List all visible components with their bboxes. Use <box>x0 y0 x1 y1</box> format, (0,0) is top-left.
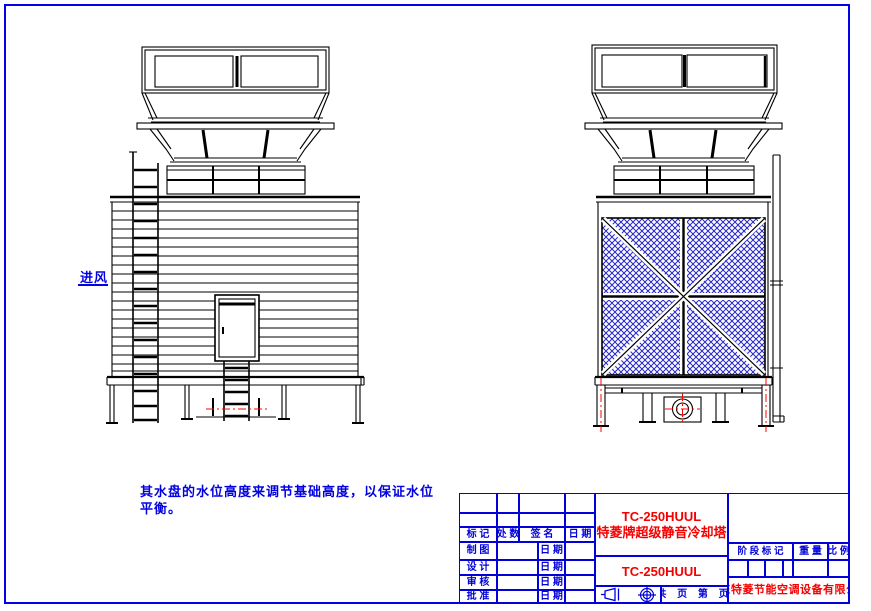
row-design-signature <box>497 560 538 575</box>
stage-mark-cell <box>765 560 783 577</box>
stage-mark-cell <box>783 560 793 577</box>
air-inlet-underline <box>78 284 108 286</box>
row-design-date-value <box>565 560 595 575</box>
revision-cell <box>459 513 497 527</box>
row-approve-date-value <box>565 590 595 603</box>
row-draft-date: 日 期 <box>538 542 565 560</box>
front-view-drawing <box>106 47 364 423</box>
company-name: 广东特菱节能空调设备有限公司 <box>728 577 849 603</box>
drawing-number: TC-250HUUL <box>595 556 728 586</box>
row-draft-date-value <box>565 542 595 560</box>
stage-mark-header: 阶 段 标 记 <box>728 543 793 560</box>
row-draft-signature <box>497 542 538 560</box>
row-design-label: 设 计 <box>459 560 497 575</box>
product-name: 特菱牌超级静音冷却塔 <box>596 526 726 539</box>
drawing-sheet: 进风 其水盘的水位高度来调节基础高度，以保证水位 平衡。 标 记 处 数 签 名… <box>0 0 871 611</box>
revision-cell <box>519 513 565 527</box>
revision-cell <box>565 513 595 527</box>
row-draft-label: 制 图 <box>459 542 497 560</box>
projection-symbols-cell <box>595 586 661 603</box>
row-approve-label: 批 准 <box>459 590 497 603</box>
first-angle-projection-icon <box>600 587 626 602</box>
revision-cell <box>565 493 595 513</box>
row-review-signature <box>497 575 538 590</box>
revision-cell <box>497 513 519 527</box>
weight-value-cell <box>793 560 828 577</box>
material-cell <box>728 493 849 543</box>
scale-header: 比 例 <box>828 543 849 560</box>
title-cell: TC-250HUUL 特菱牌超级静音冷却塔 <box>595 493 728 556</box>
weight-header: 重 量 <box>793 543 828 560</box>
header-signature: 签 名 <box>519 527 565 542</box>
title-block: 标 记 处 数 签 名 日 期 制 图 日 期 设 计 日 期 审 核 日 期 … <box>459 493 849 603</box>
note-line-2: 平衡。 <box>140 498 182 517</box>
row-review-date-value <box>565 575 595 590</box>
scale-value-cell <box>828 560 849 577</box>
note-line-1: 其水盘的水位高度来调节基础高度，以保证水位 <box>140 481 434 500</box>
pages-cell: 共 页 第 页 <box>661 586 728 603</box>
revision-cell <box>459 493 497 513</box>
inlet-mesh <box>602 218 765 375</box>
stage-mark-cell <box>748 560 765 577</box>
side-view-drawing <box>585 45 784 432</box>
header-mark: 标 记 <box>459 527 497 542</box>
revision-cell <box>519 493 565 513</box>
datum-target-icon <box>638 586 656 603</box>
row-review-label: 审 核 <box>459 575 497 590</box>
row-approve-signature <box>497 590 538 603</box>
stage-mark-cell <box>728 560 748 577</box>
row-review-date: 日 期 <box>538 575 565 590</box>
model-number: TC-250HUUL <box>622 510 701 523</box>
header-date: 日 期 <box>565 527 595 542</box>
revision-cell <box>497 493 519 513</box>
header-count: 处 数 <box>497 527 519 542</box>
row-design-date: 日 期 <box>538 560 565 575</box>
row-approve-date: 日 期 <box>538 590 565 603</box>
